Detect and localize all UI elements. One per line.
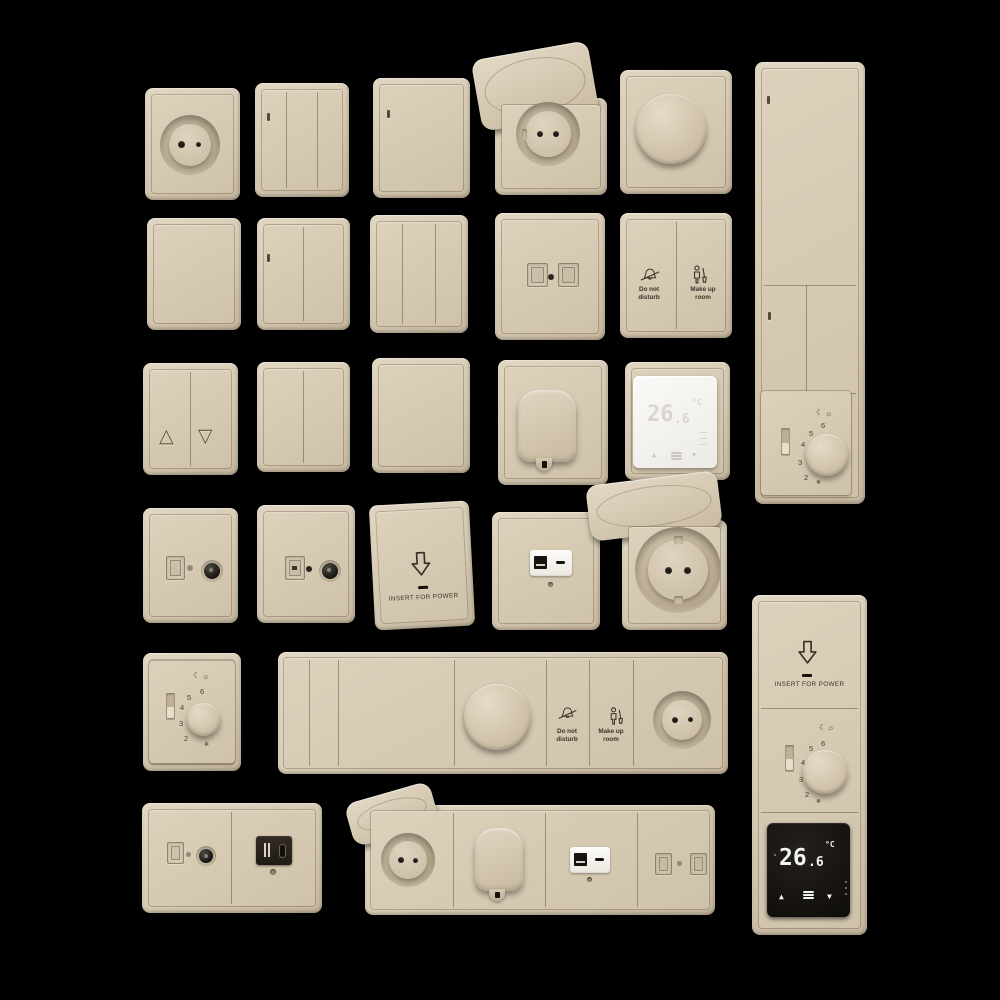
horizontal-panel-dimmer-service-socket: Do notdisturb Make uproom <box>278 652 728 774</box>
socket-pin-hole <box>665 567 672 574</box>
usb-c-port <box>556 561 565 564</box>
temperature-value: 26 <box>779 847 807 870</box>
frost-icon: ❄ <box>816 799 821 805</box>
rocker-divider <box>309 660 310 766</box>
socket-pin-hole <box>553 131 559 137</box>
coax-connector <box>201 560 223 582</box>
usb-a-port <box>534 556 547 569</box>
plate-frame <box>379 365 463 466</box>
socket-pin-hole <box>398 857 404 863</box>
vertical-panel-switches-thermostat-dial: ☾ ☼ 6 5 4 3 2 ❄ <box>755 62 865 504</box>
switch-2-gang-indicator <box>257 218 350 330</box>
horizontal-panel-socket-outlet-usb-data <box>365 805 715 915</box>
rocker-divider <box>317 92 318 188</box>
socket-pin-hole <box>688 717 693 722</box>
usb-c-port <box>595 858 604 861</box>
socket-pin-hole <box>537 131 543 137</box>
socket-face <box>169 124 211 166</box>
usb-charger-white <box>492 512 600 630</box>
rotary-dimmer <box>620 70 732 194</box>
section-divider <box>764 285 856 286</box>
night-mode-icon: ☾ <box>816 409 823 417</box>
night-mode-icon: ☾ <box>193 672 200 680</box>
section-divider <box>633 660 634 766</box>
screw <box>548 582 553 587</box>
socket-face <box>648 540 708 600</box>
thermostat-dial-knob <box>803 750 847 794</box>
rocker-divider <box>589 660 590 766</box>
do-not-disturb-label: Do notdisturb <box>622 286 676 302</box>
switch-1-gang-indicator <box>373 78 470 198</box>
socket-face <box>525 111 571 157</box>
data-socket-double <box>495 213 605 340</box>
power-socket-round <box>145 88 240 200</box>
section-divider <box>637 813 638 907</box>
temperature-value: 26 <box>647 404 674 426</box>
switch-3-gang <box>370 215 468 333</box>
power-socket-flip-lid-large <box>622 520 727 630</box>
plate-frame <box>377 222 461 326</box>
cable-outlet-hood <box>518 390 576 462</box>
status-dot <box>306 566 312 572</box>
plate-frame <box>380 85 463 191</box>
indicator-mark <box>768 312 771 320</box>
vent-line <box>700 432 707 433</box>
rocker-divider <box>676 222 677 329</box>
temp-up-button: ▲ <box>779 893 784 901</box>
cable-slot <box>495 892 500 898</box>
make-up-room-label: Make uproom <box>676 286 730 302</box>
make-up-room-label: Make uproom <box>589 728 633 744</box>
dial-mark: 6 <box>200 688 204 696</box>
blinds-up-icon: △ <box>159 427 174 446</box>
day-mode-icon: ☼ <box>827 724 834 732</box>
section-divider <box>761 812 858 813</box>
sensor-dot <box>845 893 847 895</box>
cable-slot <box>542 461 547 468</box>
do-not-disturb-icon <box>557 705 578 723</box>
digital-thermostat-white: 26 .6 °C ▲ ▼ <box>625 362 730 480</box>
data-jack <box>655 853 672 875</box>
thermostat-screen: 26 .6 °C ▲ ▼ <box>633 376 717 468</box>
insert-card-arrow-icon <box>795 639 820 666</box>
dial-mark: 2 <box>805 791 809 799</box>
dial-mark: 5 <box>187 694 191 702</box>
temperature-decimal: .6 <box>674 413 690 426</box>
temp-down-button: ▼ <box>692 452 696 459</box>
earth-clip <box>522 129 527 140</box>
tv-usb-double-plate <box>142 803 322 913</box>
rocker-divider <box>190 372 191 466</box>
render-scene: ☾ ☼ 6 5 4 3 2 ❄ <box>0 0 1000 1000</box>
section-divider <box>454 660 455 766</box>
usb-module <box>530 550 572 576</box>
socket-face <box>662 700 702 740</box>
section-divider <box>545 813 546 907</box>
coax-connector <box>196 846 216 866</box>
do-not-disturb-label: Do notdisturb <box>545 728 589 744</box>
blinds-switch: △ ▽ <box>143 363 238 475</box>
plate-frame <box>262 90 342 190</box>
dial-mark: 6 <box>821 740 825 748</box>
rocker-divider <box>303 227 304 321</box>
switch-3-gang-indicator <box>255 83 349 197</box>
thermostat-dial-knob <box>806 434 848 476</box>
dial-mark: 3 <box>179 720 183 728</box>
rocker-divider <box>338 660 339 766</box>
sensor-dot <box>845 887 847 889</box>
data-jack <box>527 263 548 287</box>
temperature-unit: °C <box>692 399 702 407</box>
insert-card-arrow-icon <box>407 549 434 578</box>
dial-mark: 5 <box>809 745 813 753</box>
mode-slider <box>166 693 175 720</box>
tv-data-socket <box>143 508 238 623</box>
section-divider <box>231 812 232 904</box>
dial-mark: 6 <box>821 422 825 430</box>
dial-mark: 2 <box>184 735 188 743</box>
make-up-room-icon <box>606 706 625 726</box>
switch-2-gang <box>257 362 350 472</box>
dial-mark: 4 <box>180 704 184 712</box>
dial-mark: 2 <box>804 474 808 482</box>
indicator-mark <box>387 110 390 118</box>
temp-down-button: ▼ <box>827 893 832 901</box>
temp-up-button: ▲ <box>652 452 656 459</box>
switch-1-gang <box>372 358 470 473</box>
switch-1-gang-blank <box>147 218 241 330</box>
earth-clip <box>674 536 683 544</box>
socket-pin-hole <box>196 142 201 147</box>
socket-pin-hole <box>672 717 678 723</box>
usb-a-port <box>574 853 587 866</box>
frost-icon: ❄ <box>816 480 821 486</box>
mode-slider <box>785 745 794 772</box>
sensor-dot <box>845 881 847 883</box>
socket-pin-hole <box>413 858 418 863</box>
rocker-divider <box>435 224 436 324</box>
dimmer-knob <box>636 94 706 164</box>
data-jack <box>166 556 185 580</box>
rj45-jack <box>285 556 305 580</box>
card-slot <box>418 586 428 590</box>
cable-outlet-hood <box>475 828 523 891</box>
rocker-divider <box>286 92 287 188</box>
tv-rj45-socket <box>257 505 355 623</box>
dimmer-knob <box>464 684 530 750</box>
frost-icon: ❄ <box>204 742 209 748</box>
data-jack <box>167 842 184 864</box>
dial-mark: 4 <box>801 441 805 449</box>
screw <box>587 877 592 882</box>
socket-face <box>389 841 427 879</box>
section-divider <box>546 660 547 766</box>
socket-pin-hole <box>684 567 691 574</box>
status-dot <box>186 852 191 857</box>
data-jack <box>558 263 579 287</box>
status-dot <box>774 854 776 856</box>
status-dot <box>548 274 554 280</box>
card-slot <box>802 674 812 677</box>
coax-connector <box>319 560 341 582</box>
make-up-room-icon <box>689 264 709 285</box>
indicator-mark <box>267 113 270 121</box>
power-socket-flip-lid <box>495 98 607 195</box>
section-divider <box>761 708 858 709</box>
dial-mark: 3 <box>798 459 802 467</box>
day-mode-icon: ☼ <box>825 410 832 418</box>
rocker-divider <box>402 224 403 324</box>
mode-slider <box>781 428 790 456</box>
thermostat-screen: 26 .6 °C ▲ ▼ <box>767 823 850 917</box>
night-mode-icon: ☾ <box>819 724 826 732</box>
blinds-down-icon: ▽ <box>198 427 213 446</box>
do-not-disturb-icon <box>639 266 661 285</box>
dial-mark: 3 <box>799 776 803 784</box>
indicator-mark <box>267 254 270 262</box>
status-dot <box>677 861 682 866</box>
key-card-holder: INSERT FOR POWER <box>369 500 475 630</box>
earth-clip <box>674 596 683 604</box>
menu-icon <box>803 891 814 899</box>
usb-module-black <box>256 836 292 865</box>
usb-module <box>570 847 610 873</box>
data-jack <box>690 853 707 875</box>
rocker-divider <box>806 285 807 393</box>
insert-for-power-label: INSERT FOR POWER <box>752 681 867 688</box>
day-mode-icon: ☼ <box>202 673 209 681</box>
temperature-decimal: .6 <box>808 856 824 869</box>
dial-mark: 5 <box>809 430 813 438</box>
vertical-panel-keycard-thermostat-display: INSERT FOR POWER ☾ ☼ 6 5 4 3 2 ❄ 26 .6 °… <box>752 595 867 935</box>
status-dot <box>187 565 193 571</box>
vent-line <box>700 444 707 445</box>
section-divider <box>453 813 454 907</box>
thermostat-dial-plate: ☾ ☼ 6 5 4 3 2 ❄ <box>143 653 241 771</box>
menu-icon <box>671 452 682 460</box>
moulded-cable-outlet <box>498 360 608 485</box>
rocker-divider <box>303 371 304 463</box>
screw <box>270 869 276 875</box>
vent-line <box>700 438 707 439</box>
indicator-mark <box>767 96 770 104</box>
temperature-unit: °C <box>825 841 835 849</box>
plate-frame <box>154 225 234 323</box>
thermostat-dial-knob <box>187 703 220 736</box>
socket-pin-hole <box>178 141 185 148</box>
do-not-disturb-make-up-room-switch: Do notdisturb Make uproom <box>620 213 732 338</box>
